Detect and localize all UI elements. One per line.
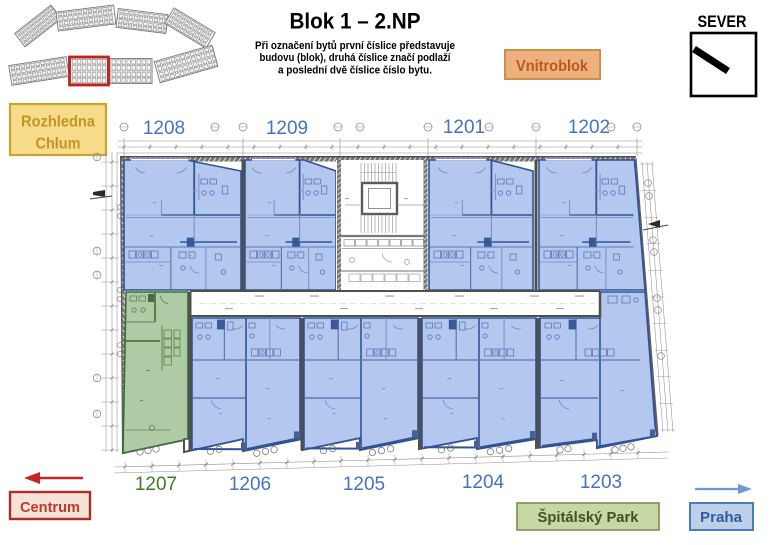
svg-text:1203: 1203 [580, 472, 622, 493]
svg-text:1207: 1207 [135, 474, 177, 495]
svg-text:SEVER: SEVER [698, 12, 747, 31]
svg-text:Chlum: Chlum [36, 136, 81, 153]
svg-text:1205: 1205 [343, 474, 385, 495]
svg-text:Rozhledna: Rozhledna [21, 114, 95, 131]
svg-text:Při označení bytů první číslic: Při označení bytů první číslice představ… [255, 40, 455, 52]
svg-text:1206: 1206 [229, 474, 271, 495]
svg-text:Špitálský Park: Špitálský Park [538, 508, 640, 526]
svg-text:budovu (blok), druhá číslice z: budovu (blok), druhá číslice značí podla… [260, 52, 452, 64]
svg-text:Vnitroblok: Vnitroblok [516, 58, 588, 75]
svg-text:Centrum: Centrum [20, 499, 80, 516]
svg-text:a poslední dvě číslice číslo b: a poslední dvě číslice číslo bytu. [278, 65, 432, 77]
svg-text:1208: 1208 [143, 118, 185, 139]
svg-text:1201: 1201 [443, 117, 485, 138]
svg-text:1202: 1202 [568, 117, 610, 138]
svg-text:1209: 1209 [266, 118, 308, 139]
svg-text:Praha: Praha [700, 510, 743, 526]
svg-text:Blok 1 – 2.NP: Blok 1 – 2.NP [290, 9, 421, 34]
svg-text:1204: 1204 [462, 472, 505, 493]
